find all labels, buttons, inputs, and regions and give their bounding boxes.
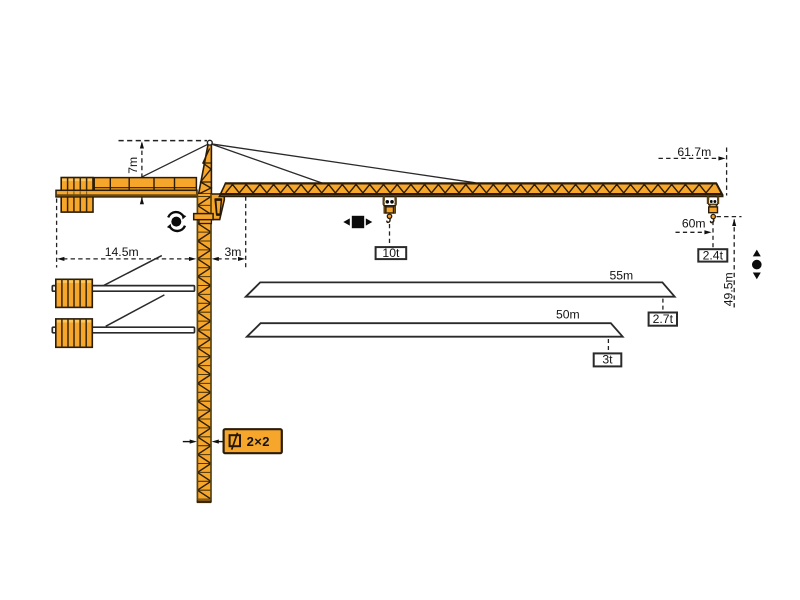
svg-text:2.7t: 2.7t	[653, 312, 674, 326]
svg-text:14.5m: 14.5m	[105, 245, 139, 259]
svg-text:2.4t: 2.4t	[703, 248, 724, 262]
svg-text:50m: 50m	[556, 307, 580, 321]
svg-text:55m: 55m	[609, 268, 633, 282]
svg-text:60m: 60m	[682, 217, 706, 231]
svg-text:49.5m: 49.5m	[721, 272, 735, 306]
svg-text:61.7m: 61.7m	[677, 145, 711, 159]
svg-text:3t: 3t	[602, 353, 613, 367]
svg-text:2×2: 2×2	[247, 434, 270, 449]
svg-text:10t: 10t	[382, 246, 400, 260]
svg-text:3m: 3m	[225, 245, 242, 259]
svg-text:7m: 7m	[126, 157, 140, 174]
